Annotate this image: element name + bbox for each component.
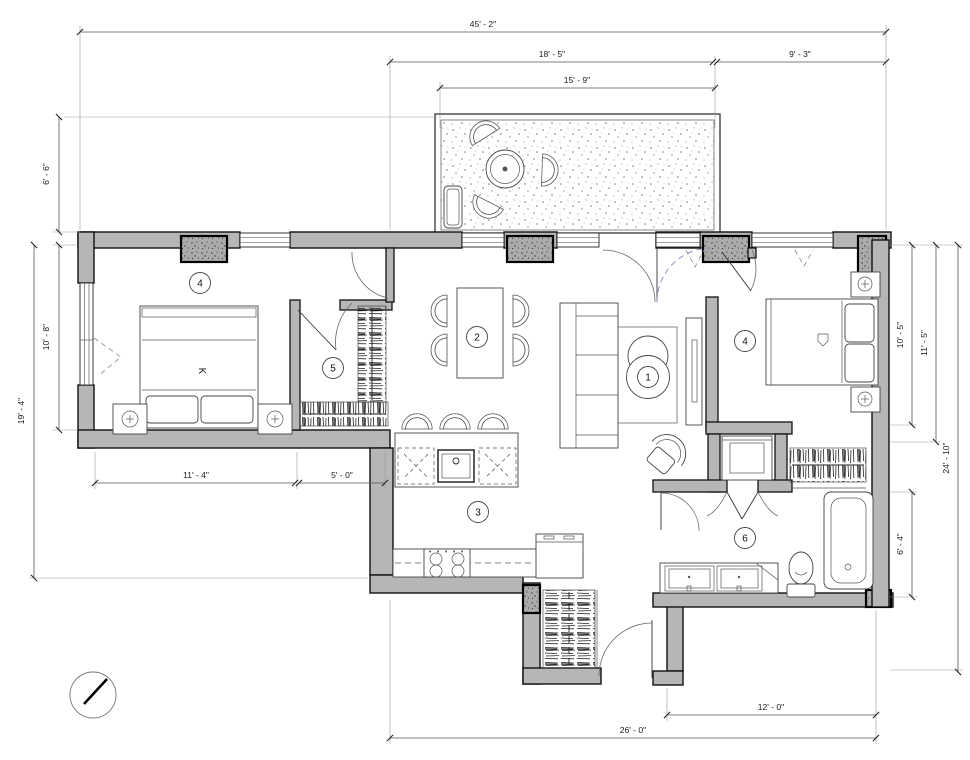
stove [424,549,470,577]
bed-size-label: K [196,368,207,375]
north-arrow-icon [70,672,116,718]
room-number-dining: 2 [474,333,480,344]
nightstand-top [851,272,880,297]
room-badge-kitchen: 3 [468,502,489,523]
window-top-4 [656,233,700,247]
bedroom-left-furniture: K [113,306,292,434]
living-room-furniture [560,303,702,480]
bed-king: K [140,306,258,428]
dim-overall-width: 45' - 2" [470,19,496,29]
window-top-5 [752,233,833,247]
washer-unit [722,436,772,480]
window-top-1 [240,233,290,247]
casement-mark-left [94,338,121,376]
floor-plan-canvas: K [0,0,970,760]
dim-closet-width: 5' - 0" [331,470,353,480]
dim-right-height: 24' - 10" [941,442,951,473]
casement-mark-top-2 [795,250,813,266]
bedroom-left-door [352,252,388,298]
closet-right-interior [790,448,866,482]
window-top-2 [462,233,504,247]
dim-left-height: 19' - 4" [16,398,26,424]
media-console [686,318,702,425]
room-number-bedroom-left: 4 [197,279,203,290]
dim-bedroom-left-width: 11' - 4" [183,470,209,480]
dim-bath-depth: 6' - 4" [895,533,905,555]
room-number-closet: 5 [330,364,336,375]
nightstand-bottom [851,387,880,412]
armchair [641,427,694,480]
room-number-bathroom: 6 [742,534,748,545]
room-badge-bathroom: 6 [735,528,756,549]
floor-plan-page: K [0,0,970,760]
room-badge-bedroom-left: 4 [190,273,211,294]
dim-patio-span: 18' - 5" [539,49,565,59]
room-number-kitchen: 3 [475,508,481,519]
patio-french-door [603,248,711,302]
nightstand-right [258,404,292,434]
patio-deck [435,114,720,233]
vanity [660,563,778,593]
bed-right [766,299,878,385]
room-badge-dining: 2 [467,327,488,348]
toilet [787,552,815,597]
room-badge-bedroom-right: 4 [735,331,756,352]
bathroom-fixtures [660,492,873,597]
refrigerator [536,534,583,578]
entry-door [599,620,652,678]
hall-door [661,493,699,531]
entry-closet-interior [543,590,597,668]
room-number-living: 1 [645,373,651,384]
dimensions-right: 10' - 5" 11' - 5" 24' - 10" 6' - 4" [890,245,963,672]
dim-patio-width: 15' - 9" [564,75,590,85]
sofa [560,303,618,448]
island-sink [438,450,474,482]
dim-bedroom-window: 10' - 8" [41,324,51,350]
room-badge-closet: 5 [323,358,344,379]
bathroom-doors [707,492,778,519]
kitchen-island [395,414,518,487]
dim-patio-depth: 6' - 6" [41,163,51,185]
nightstand-left [113,404,147,434]
kitchen-counter [393,534,583,578]
window-top-3 [557,233,599,247]
window-left-bedroom [80,283,93,385]
dim-bath-width: 12' - 0" [758,702,784,712]
patio-table [486,150,524,188]
bedroom-right-furniture [722,272,880,482]
dim-right-span: 9' - 3" [789,49,811,59]
room-badge-living: 1 [638,367,659,388]
dim-bedroom-right-width: 10' - 5" [895,322,905,348]
closet-left-interior [300,306,388,426]
room-number-bedroom-right: 4 [742,337,748,348]
dim-bedroom-right-depth: 11' - 5" [919,330,929,356]
patio-planter [444,186,462,228]
bathtub [824,492,873,589]
dim-bottom-width: 26' - 0" [620,725,646,735]
